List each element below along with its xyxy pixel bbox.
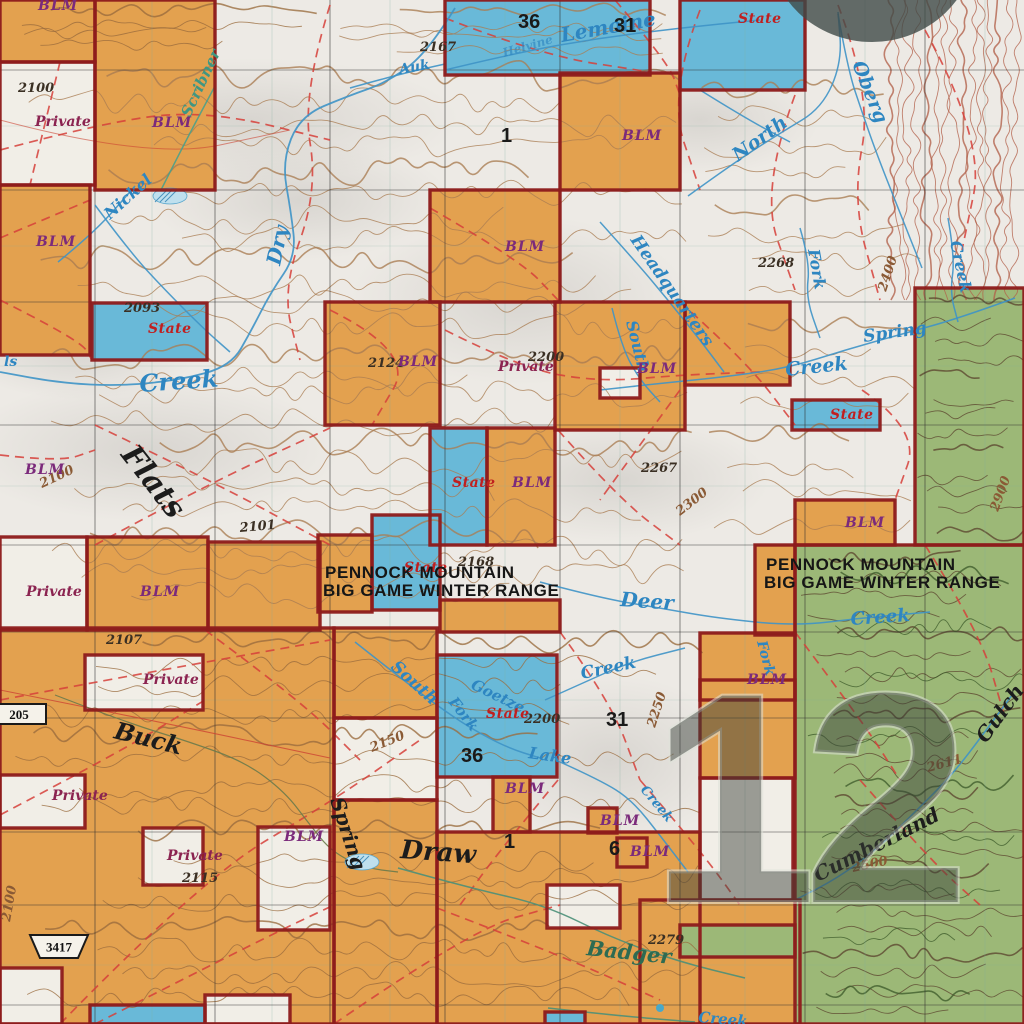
ownership-label-private: Private (497, 359, 554, 375)
ownership-label-blm: BLM (283, 829, 324, 845)
ownership-label-blm: BLM (636, 361, 677, 377)
ownership-label-blm: BLM (37, 0, 78, 14)
parcel-private[interactable] (0, 968, 62, 1024)
ownership-label-blm: BLM (599, 813, 640, 829)
ownership-label-state: State (148, 321, 192, 337)
parcel-state[interactable] (90, 1005, 205, 1024)
section-number: 1 (501, 125, 512, 147)
ownership-label-blm: BLM (504, 239, 545, 255)
elevation-label: 2267 (640, 461, 677, 476)
section-number: 36 (461, 745, 483, 767)
section-number: 6 (609, 838, 620, 860)
ownership-label-state: State (830, 407, 874, 423)
road-number: 205 (9, 707, 29, 722)
pond-dot (656, 1004, 664, 1012)
ownership-label-blm: BLM (35, 234, 76, 250)
elevation-label: 2115 (181, 871, 218, 886)
winter-range-label: PENNOCK MOUNTAIN (766, 555, 956, 574)
ownership-label-blm: BLM (139, 584, 180, 600)
road-shield-205: 205 (0, 704, 46, 724)
parcel-private[interactable] (547, 885, 620, 928)
ownership-label-blm: BLM (504, 781, 545, 797)
ownership-label-blm: BLM (621, 128, 662, 144)
map-unit-watermark-number: 12 (650, 630, 962, 966)
parcel-private[interactable] (205, 995, 290, 1024)
ownership-label-blm: BLM (844, 515, 885, 531)
ownership-label-private: Private (25, 584, 82, 600)
road-number: 3417 (46, 940, 73, 955)
ownership-label-private: Private (142, 672, 199, 688)
ownership-label-state: State (738, 11, 782, 27)
ownership-label-state: State (452, 475, 496, 491)
section-number: 31 (606, 709, 628, 731)
topo-ownership-map[interactable]: 2100216720932101210721152124216822002200… (0, 0, 1024, 1024)
elevation-label: 2107 (105, 633, 142, 648)
ownership-label-private: Private (34, 114, 91, 130)
elevation-label: 2268 (757, 256, 794, 271)
road-shield-3417: 3417 (30, 935, 88, 958)
ownership-label-blm: BLM (397, 354, 438, 370)
creek-label: ls (4, 354, 17, 370)
creek-label: Deer (619, 587, 676, 615)
elevation-label: 2093 (123, 301, 160, 316)
section-number: 1 (504, 831, 515, 853)
parcel-blm[interactable] (0, 185, 90, 355)
section-number: 36 (518, 11, 540, 33)
elevation-label: 2100 (17, 81, 54, 96)
map-viewport[interactable]: 2100216720932101210721152124216822002200… (0, 0, 1024, 1024)
ownership-label-blm: BLM (151, 115, 192, 131)
winter-range-label: BIG GAME WINTER RANGE (764, 573, 1000, 592)
ownership-label-private: Private (166, 848, 223, 864)
ownership-label-blm: BLM (24, 462, 65, 478)
ownership-label-blm: BLM (511, 475, 552, 491)
winter-range-label: PENNOCK MOUNTAIN (325, 563, 515, 582)
parcel-state[interactable] (545, 1012, 585, 1024)
elevation-label: 2167 (419, 40, 456, 55)
ownership-label-private: Private (51, 788, 108, 804)
winter-range-label: BIG GAME WINTER RANGE (323, 581, 559, 600)
ownership-label-state: State (486, 706, 530, 722)
creek-label: Creek (138, 364, 219, 398)
section-number: 31 (614, 15, 636, 37)
parcel-blm[interactable] (440, 600, 560, 632)
parcel-blm[interactable] (208, 542, 320, 630)
creek-label: Creek (850, 605, 911, 630)
terrain-label: Draw (399, 835, 479, 870)
